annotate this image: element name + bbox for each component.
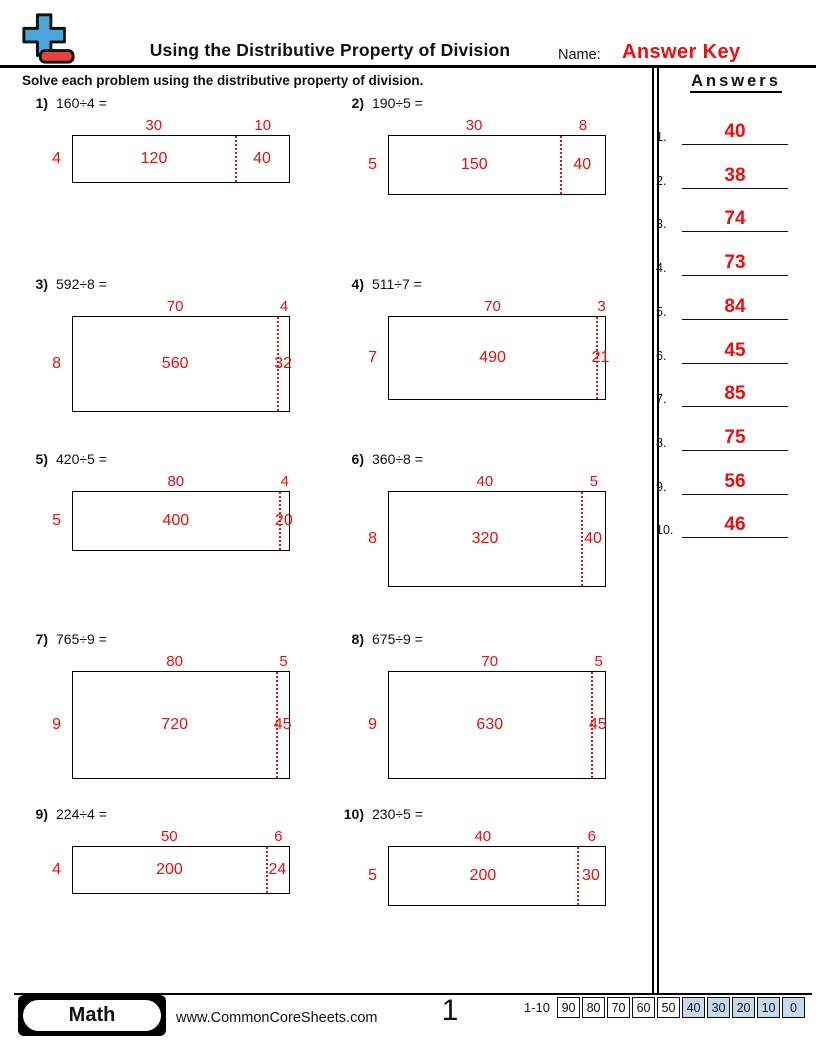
- answer-number: 7.: [656, 392, 682, 407]
- area-model-box: 4 200 24: [72, 846, 290, 894]
- answer-blank-line: 84: [682, 296, 788, 320]
- answer-value: 85: [724, 383, 745, 404]
- answer-blank-line: 74: [682, 208, 788, 232]
- answer-value: 73: [724, 252, 745, 273]
- answer-number: 8.: [656, 436, 682, 451]
- problem-expression: 511÷7 =: [372, 276, 422, 292]
- dotted-partition-line: [581, 492, 583, 586]
- answer-number: 4.: [656, 261, 682, 276]
- answer-blank-line: 56: [682, 471, 788, 495]
- problem-number: 3): [22, 276, 48, 292]
- subject-badge: Math: [18, 995, 166, 1036]
- partial-product-left: 490: [479, 349, 506, 367]
- problem-number: 6): [338, 451, 364, 467]
- divisor-label: 5: [368, 156, 377, 174]
- score-cell-40: 40: [682, 997, 705, 1018]
- score-cell-30: 30: [707, 997, 730, 1018]
- score-cell-20: 20: [732, 997, 755, 1018]
- problem-number: 7): [22, 631, 48, 647]
- partial-product-right: 45: [589, 716, 607, 734]
- area-model-box: 7 490 21: [388, 316, 606, 400]
- problem-expression: 675÷9 =: [372, 631, 423, 647]
- area-model-box: 8 320 40: [388, 491, 606, 587]
- problem-5: 5) 420÷5 = 80 4 5 400 20: [22, 451, 322, 551]
- quotient-part-left-label: 30: [145, 117, 162, 134]
- answer-number: 6.: [656, 349, 682, 364]
- answer-row-6: 6. 45: [656, 340, 800, 364]
- partial-product-left: 320: [472, 530, 499, 548]
- quotient-part-left-label: 30: [466, 117, 483, 134]
- problem-number: 9): [22, 806, 48, 822]
- answer-row-8: 8. 75: [656, 427, 800, 451]
- divisor-label: 4: [52, 150, 61, 168]
- answer-number: 3.: [656, 217, 682, 232]
- dotted-partition-line: [577, 847, 579, 905]
- problem-8: 8) 675÷9 = 70 5 9 630 45: [338, 631, 638, 779]
- answer-row-4: 4. 73: [656, 252, 800, 276]
- problem-number: 8): [338, 631, 364, 647]
- page-number: 1: [430, 994, 470, 1028]
- problem-2: 2) 190÷5 = 30 8 5 150 40: [338, 95, 638, 195]
- quotient-part-left-label: 40: [477, 473, 494, 490]
- score-cell-90: 90: [557, 997, 580, 1018]
- answer-value: 74: [724, 208, 745, 229]
- area-model-box: 5 150 40: [388, 135, 606, 195]
- answer-blank-line: 38: [682, 165, 788, 189]
- partial-product-left: 400: [162, 512, 189, 530]
- problem-number: 1): [22, 95, 48, 111]
- quotient-part-left-label: 40: [474, 828, 491, 845]
- quotient-part-right-label: 6: [588, 828, 596, 845]
- area-model-box: 9 720 45: [72, 671, 290, 779]
- answer-blank-line: 45: [682, 340, 788, 364]
- answer-number: 2.: [656, 174, 682, 189]
- problem-statement: 8) 675÷9 =: [338, 631, 638, 647]
- answer-value: 75: [724, 427, 745, 448]
- answer-value: 46: [724, 514, 745, 535]
- partial-product-left: 120: [141, 150, 168, 168]
- divisor-label: 8: [368, 530, 377, 548]
- answer-row-3: 3. 74: [656, 208, 800, 232]
- problem-7: 7) 765÷9 = 80 5 9 720 45: [22, 631, 322, 779]
- partial-product-right: 45: [274, 716, 292, 734]
- area-model-box: 5 400 20: [72, 491, 290, 551]
- divisor-label: 4: [52, 861, 61, 879]
- partial-product-left: 150: [461, 156, 488, 174]
- score-cell-0: 0: [782, 997, 805, 1018]
- problem-6: 6) 360÷8 = 40 5 8 320 40: [338, 451, 638, 587]
- problem-statement: 3) 592÷8 =: [22, 276, 322, 292]
- problem-4: 4) 511÷7 = 70 3 7 490 21: [338, 276, 638, 400]
- answer-value: 38: [724, 165, 745, 186]
- problem-expression: 230÷5 =: [372, 806, 423, 822]
- partial-product-right: 40: [573, 156, 591, 174]
- quotient-part-right-label: 5: [279, 653, 287, 670]
- problem-expression: 224÷4 =: [56, 806, 107, 822]
- answer-row-10: 10. 46: [656, 514, 800, 538]
- problem-statement: 4) 511÷7 =: [338, 276, 638, 292]
- quotient-part-left-label: 70: [484, 298, 501, 315]
- quotient-part-right-label: 8: [579, 117, 587, 134]
- score-cell-80: 80: [582, 997, 605, 1018]
- problem-3: 3) 592÷8 = 70 4 8 560 32: [22, 276, 322, 412]
- partial-product-right: 40: [253, 150, 271, 168]
- area-model-box: 8 560 32: [72, 316, 290, 412]
- score-table: 1-10 90 80 70 60 50 40 30 20 10 0: [524, 997, 805, 1018]
- quotient-part-right-label: 5: [590, 473, 598, 490]
- answer-row-2: 2. 38: [656, 165, 800, 189]
- partial-product-left: 720: [161, 716, 188, 734]
- answer-number: 5.: [656, 305, 682, 320]
- subject-badge-label: Math: [23, 1000, 161, 1031]
- quotient-part-left-label: 70: [167, 298, 184, 315]
- problem-expression: 420÷5 =: [56, 451, 107, 467]
- partial-product-left: 200: [156, 861, 183, 879]
- answer-value: 45: [724, 340, 745, 361]
- problem-statement: 10) 230÷5 =: [338, 806, 638, 822]
- partial-product-right: 21: [592, 349, 610, 367]
- quotient-part-right-label: 6: [274, 828, 282, 845]
- answer-number: 1.: [656, 130, 682, 145]
- area-model-box: 4 120 40: [72, 135, 290, 183]
- name-value-answer-key: Answer Key: [622, 41, 741, 64]
- divisor-label: 5: [368, 867, 377, 885]
- problem-9: 9) 224÷4 = 50 6 4 200 24: [22, 806, 322, 894]
- partial-product-left: 630: [476, 716, 503, 734]
- score-cell-60: 60: [632, 997, 655, 1018]
- problem-expression: 190÷5 =: [372, 95, 423, 111]
- divisor-label: 9: [52, 716, 61, 734]
- problem-expression: 765÷9 =: [56, 631, 107, 647]
- answer-value: 84: [724, 296, 745, 317]
- problem-expression: 160÷4 =: [56, 95, 107, 111]
- website-url: www.CommonCoreSheets.com: [176, 1010, 377, 1026]
- quotient-part-right-label: 4: [281, 473, 289, 490]
- answer-blank-line: 75: [682, 427, 788, 451]
- instruction-text: Solve each problem using the distributiv…: [22, 73, 423, 88]
- dotted-partition-line: [235, 136, 237, 182]
- quotient-part-left-label: 70: [481, 653, 498, 670]
- problem-statement: 2) 190÷5 =: [338, 95, 638, 111]
- problem-number: 10): [338, 806, 364, 822]
- problem-statement: 6) 360÷8 =: [338, 451, 638, 467]
- score-cell-70: 70: [607, 997, 630, 1018]
- score-cell-50: 50: [657, 997, 680, 1018]
- partial-product-left: 200: [470, 867, 497, 885]
- answer-number: 10.: [656, 523, 682, 538]
- partial-product-left: 560: [162, 355, 189, 373]
- worksheet-page: Using the Distributive Property of Divis…: [0, 0, 816, 1056]
- answer-row-5: 5. 84: [656, 296, 800, 320]
- answer-blank-line: 85: [682, 383, 788, 407]
- divisor-label: 9: [368, 716, 377, 734]
- divisor-label: 8: [52, 355, 61, 373]
- answer-blank-line: 40: [682, 121, 788, 145]
- header-divider-line: [0, 65, 816, 68]
- quotient-part-left-label: 80: [167, 473, 184, 490]
- partial-product-right: 20: [275, 512, 293, 530]
- name-label: Name:: [558, 47, 601, 63]
- partial-product-right: 40: [584, 530, 602, 548]
- answer-row-9: 9. 56: [656, 471, 800, 495]
- divisor-label: 7: [368, 349, 377, 367]
- score-range-label: 1-10: [524, 1000, 550, 1015]
- problem-number: 5): [22, 451, 48, 467]
- problem-1: 1) 160÷4 = 30 10 4 120 40: [22, 95, 322, 183]
- quotient-part-right-label: 5: [595, 653, 603, 670]
- partial-product-right: 32: [274, 355, 292, 373]
- answer-row-1: 1. 40: [656, 121, 800, 145]
- problem-number: 2): [338, 95, 364, 111]
- answers-heading: Answers: [660, 72, 812, 91]
- answer-row-7: 7. 85: [656, 383, 800, 407]
- answer-blank-line: 73: [682, 252, 788, 276]
- answer-blank-line: 46: [682, 514, 788, 538]
- quotient-part-right-label: 4: [280, 298, 288, 315]
- answer-number: 9.: [656, 480, 682, 495]
- answer-value: 40: [724, 121, 745, 142]
- quotient-part-left-label: 80: [166, 653, 183, 670]
- problem-statement: 5) 420÷5 =: [22, 451, 322, 467]
- quotient-part-left-label: 50: [161, 828, 178, 845]
- problem-number: 4): [338, 276, 364, 292]
- problem-statement: 1) 160÷4 =: [22, 95, 322, 111]
- area-model-box: 5 200 30: [388, 846, 606, 906]
- partial-product-right: 24: [269, 861, 287, 879]
- problem-expression: 360÷8 =: [372, 451, 423, 467]
- problem-10: 10) 230÷5 = 40 6 5 200 30: [338, 806, 638, 906]
- area-model-box: 9 630 45: [388, 671, 606, 779]
- divisor-label: 5: [52, 512, 61, 530]
- quotient-part-right-label: 10: [254, 117, 271, 134]
- quotient-part-right-label: 3: [597, 298, 605, 315]
- score-cell-10: 10: [757, 997, 780, 1018]
- problem-statement: 9) 224÷4 =: [22, 806, 322, 822]
- partial-product-right: 30: [582, 867, 600, 885]
- dotted-partition-line: [560, 136, 562, 194]
- answer-value: 56: [724, 471, 745, 492]
- problem-expression: 592÷8 =: [56, 276, 107, 292]
- problem-statement: 7) 765÷9 =: [22, 631, 322, 647]
